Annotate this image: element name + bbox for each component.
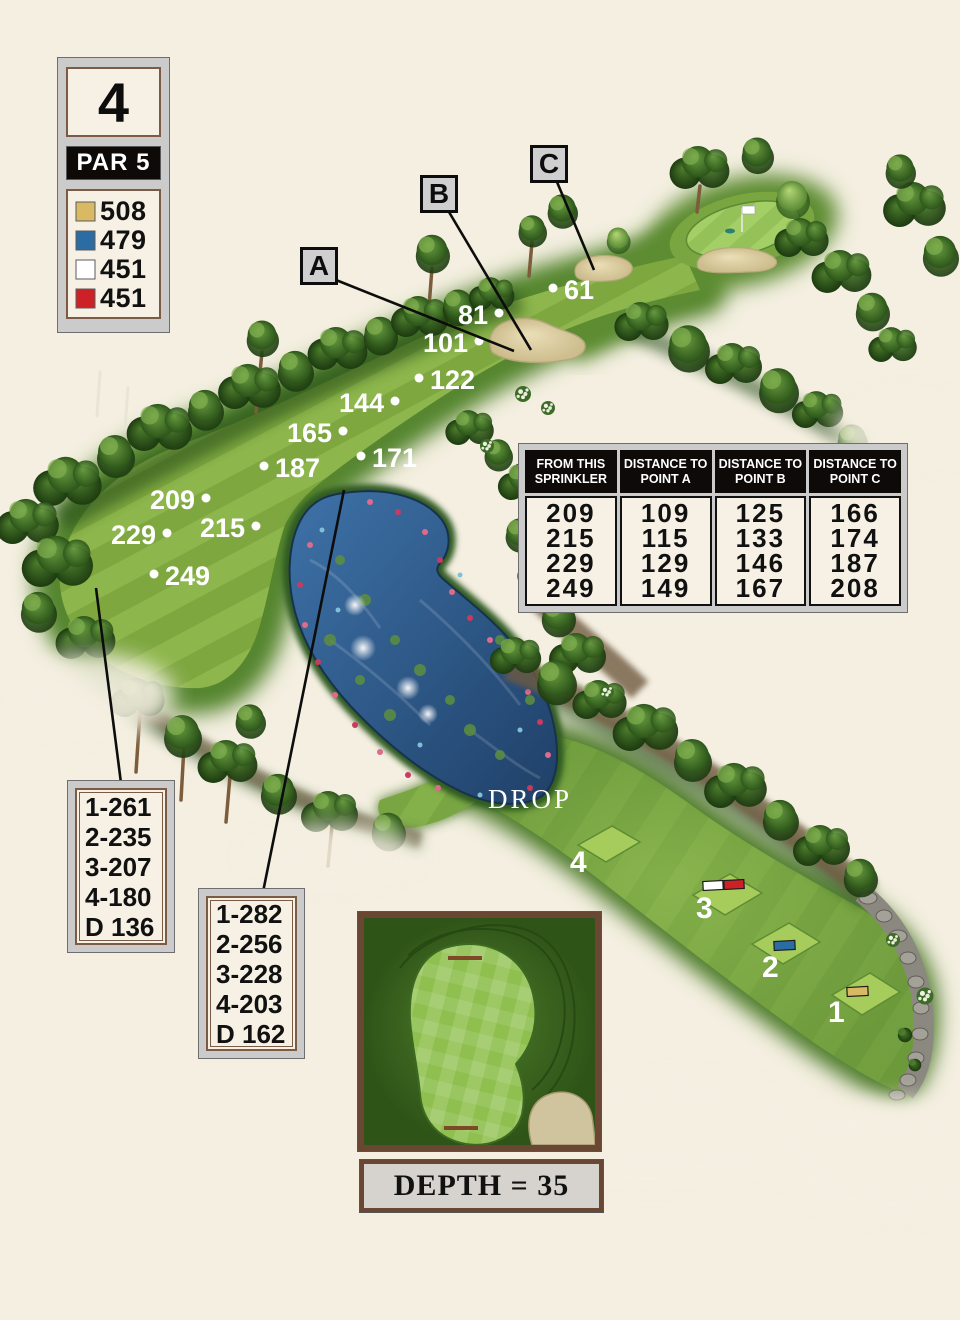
sprinkler-value: 215 bbox=[200, 513, 245, 543]
tee-label-4: 4 bbox=[570, 846, 587, 879]
sprinkler-value: 61 bbox=[564, 275, 594, 305]
column-header: FROM THIS SPRINKLER bbox=[525, 450, 617, 493]
legend-row-gold: 508 bbox=[75, 197, 155, 226]
carry-line: 3-207 bbox=[85, 852, 157, 882]
sprinkler-value: 144 bbox=[339, 388, 384, 418]
tee-marker-gold bbox=[847, 986, 868, 996]
sprinkler-value: 171 bbox=[372, 443, 417, 473]
carry-line: 1-261 bbox=[85, 792, 157, 822]
hazard-label-A: A bbox=[300, 247, 338, 285]
carry-line: 3-228 bbox=[216, 959, 287, 989]
column-values: 166 174 187 208 bbox=[809, 496, 901, 606]
hazard-label-B: B bbox=[420, 175, 458, 213]
column-header: DISTANCE TO POINT A bbox=[620, 450, 712, 493]
column-header: DISTANCE TO POINT B bbox=[715, 450, 807, 493]
hole-info-panel: 4 PAR 5 508 479 451 451 bbox=[57, 57, 170, 333]
carry-line: 4-203 bbox=[216, 989, 287, 1019]
table-cell: 208 bbox=[830, 576, 879, 601]
inset-green-surface bbox=[410, 944, 536, 1145]
table-column-point-A: DISTANCE TO POINT A 109 115 129 149 bbox=[620, 450, 712, 606]
depth-tick-top bbox=[448, 956, 482, 960]
sprinkler-value: 81 bbox=[458, 300, 488, 330]
gold-tee-yardage: 508 bbox=[100, 196, 147, 227]
par-label: PAR 5 bbox=[66, 146, 161, 180]
sprinkler-value: 165 bbox=[287, 418, 332, 448]
table-column-sprinkler: FROM THIS SPRINKLER 209 215 229 249 bbox=[525, 450, 617, 606]
carry-line: 2-256 bbox=[216, 929, 287, 959]
legend-row-red: 451 bbox=[75, 284, 155, 313]
column-values: 125 133 146 167 bbox=[715, 496, 807, 606]
sprinkler-value: 122 bbox=[430, 365, 475, 395]
drop-zone-label: DROP bbox=[488, 784, 572, 814]
tee-marker-blue bbox=[774, 940, 795, 950]
tee-label-1: 1 bbox=[828, 996, 845, 1029]
table-column-point-C: DISTANCE TO POINT C 166 174 187 208 bbox=[809, 450, 901, 606]
carry-box-middle: 1-282 2-256 3-228 4-203 D 162 bbox=[198, 888, 305, 1059]
legend-row-white: 451 bbox=[75, 255, 155, 284]
sprinkler-value: 209 bbox=[150, 485, 195, 515]
column-header: DISTANCE TO POINT C bbox=[809, 450, 901, 493]
flag-icon bbox=[742, 206, 755, 214]
legend-row-blue: 479 bbox=[75, 226, 155, 255]
sprinkler-distance-table: FROM THIS SPRINKLER 209 215 229 249 DIST… bbox=[518, 443, 908, 613]
sprinkler-value: 249 bbox=[165, 561, 210, 591]
column-values: 109 115 129 149 bbox=[620, 496, 712, 606]
carry-line: 4-180 bbox=[85, 882, 157, 912]
hazard-label-C: C bbox=[530, 145, 568, 183]
sprinkler-value: 101 bbox=[423, 328, 468, 358]
table-cell: 249 bbox=[546, 576, 595, 601]
green-inset-art bbox=[364, 918, 595, 1145]
tee-label-2: 2 bbox=[762, 951, 779, 984]
tee-marker-red bbox=[724, 879, 744, 889]
carry-line: 1-282 bbox=[216, 899, 287, 929]
table-cell: 167 bbox=[736, 576, 785, 601]
carry-line: D 136 bbox=[85, 912, 157, 942]
green-detail-inset bbox=[358, 912, 601, 1151]
blue-tee-yardage: 479 bbox=[100, 225, 147, 256]
blue-tee-swatch-icon bbox=[75, 230, 96, 251]
red-tee-swatch-icon bbox=[75, 288, 96, 309]
carry-line: D 162 bbox=[216, 1019, 287, 1049]
tee-yardage-legend: 508 479 451 451 bbox=[66, 189, 161, 319]
tee-marker-white bbox=[703, 880, 723, 890]
gold-tee-swatch-icon bbox=[75, 201, 96, 222]
white-tee-swatch-icon bbox=[75, 259, 96, 280]
green-depth-label: DEPTH = 35 bbox=[360, 1160, 603, 1212]
carry-line: 2-235 bbox=[85, 822, 157, 852]
hole-number: 4 bbox=[66, 67, 161, 137]
table-column-point-B: DISTANCE TO POINT B 125 133 146 167 bbox=[715, 450, 807, 606]
yardage-book-page: 4 3 2 1 DROP 61 81 101 122 144 165 187 1… bbox=[0, 0, 960, 1320]
sprinkler-value: 229 bbox=[111, 520, 156, 550]
carry-box-left: 1-261 2-235 3-207 4-180 D 136 bbox=[67, 780, 175, 953]
column-values: 209 215 229 249 bbox=[525, 496, 617, 606]
white-tee-yardage: 451 bbox=[100, 254, 147, 285]
table-cell: 149 bbox=[641, 576, 690, 601]
sprinkler-value: 187 bbox=[275, 453, 320, 483]
red-tee-yardage: 451 bbox=[100, 283, 147, 314]
depth-tick-bottom bbox=[444, 1126, 478, 1130]
tee-label-3: 3 bbox=[696, 892, 713, 925]
